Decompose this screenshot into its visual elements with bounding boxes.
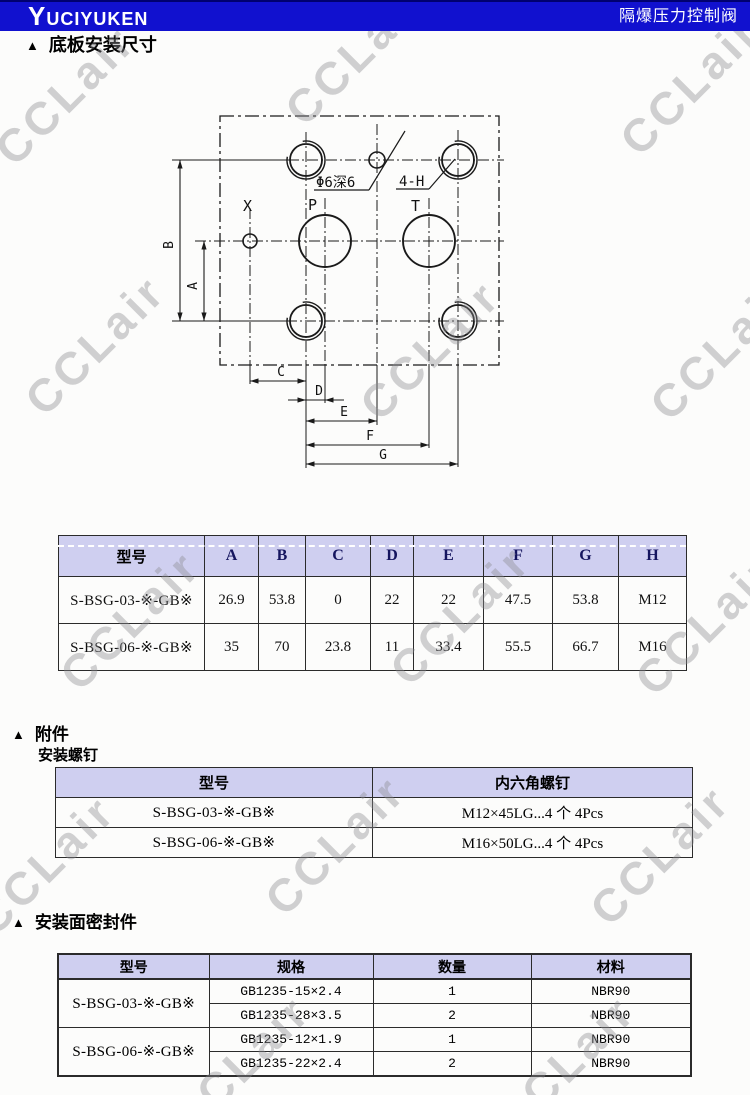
col-header-e: E [414, 536, 484, 577]
value-cell: M12 [619, 577, 687, 624]
dim-b-label: B [162, 241, 177, 249]
screw-spec-cell: M12×45LG...4 个 4Pcs [373, 798, 693, 828]
subsection-mounting-screws: 安装螺钉 [38, 744, 98, 765]
value-cell: 35 [205, 624, 259, 671]
col-header-b: B [259, 536, 306, 577]
table-row: S-BSG-03-※-GB※ 26.9 53.8 0 22 22 47.5 53… [59, 577, 687, 624]
col-header-material: 材料 [531, 954, 691, 979]
datasheet-page: YUCIYUKEN 隔爆压力控制阀 ▲底板安装尺寸 [0, 0, 750, 1095]
col-header-h: H [619, 536, 687, 577]
table-row: S-BSG-03-※-GB※ M12×45LG...4 个 4Pcs [56, 798, 693, 828]
section-title: 附件 [35, 725, 69, 744]
model-cell: S-BSG-06-※-GB※ [59, 624, 205, 671]
material-cell: NBR90 [531, 1004, 691, 1028]
material-cell: NBR90 [531, 1052, 691, 1077]
section-heading-mounting-dimensions: ▲底板安装尺寸 [26, 31, 157, 57]
value-cell: 11 [371, 624, 414, 671]
table-row: S-BSG-06-※-GB※ 35 70 23.8 11 33.4 55.5 6… [59, 624, 687, 671]
value-cell: 33.4 [414, 624, 484, 671]
qty-cell: 1 [373, 979, 531, 1004]
value-cell: 26.9 [205, 577, 259, 624]
value-cell: 70 [259, 624, 306, 671]
col-header-d: D [371, 536, 414, 577]
table-row: S-BSG-06-※-GB※ M16×50LG...4 个 4Pcs [56, 828, 693, 858]
qty-cell: 2 [373, 1004, 531, 1028]
col-header-model: 型号 [58, 954, 209, 979]
mounting-dimension-drawing: Φ6深6 4-H X P T B A C D E [150, 98, 525, 483]
triangle-marker-icon: ▲ [12, 915, 25, 930]
dim-c-label: C [277, 365, 285, 380]
page-title: 隔爆压力控制阀 [619, 2, 738, 32]
model-cell: S-BSG-03-※-GB※ [56, 798, 373, 828]
table-header-row: 型号 内六角螺钉 [56, 768, 693, 798]
value-cell: 47.5 [484, 577, 553, 624]
triangle-marker-icon: ▲ [12, 727, 25, 742]
value-cell: 66.7 [553, 624, 619, 671]
value-cell: 55.5 [484, 624, 553, 671]
material-cell: NBR90 [531, 979, 691, 1004]
value-cell: 22 [371, 577, 414, 624]
col-header-spec: 规格 [209, 954, 373, 979]
value-cell: 22 [414, 577, 484, 624]
model-cell: S-BSG-06-※-GB※ [56, 828, 373, 858]
col-header-c: C [306, 536, 371, 577]
model-cell: S-BSG-03-※-GB※ [58, 979, 209, 1028]
col-header-g: G [553, 536, 619, 577]
spec-cell: GB1235-12×1.9 [209, 1028, 373, 1052]
qty-cell: 1 [373, 1028, 531, 1052]
mounting-screw-table: 型号 内六角螺钉 S-BSG-03-※-GB※ M12×45LG...4 个 4… [55, 767, 693, 858]
col-header-model: 型号 [56, 768, 373, 798]
material-cell: NBR90 [531, 1028, 691, 1052]
value-cell: 53.8 [259, 577, 306, 624]
value-cell: 0 [306, 577, 371, 624]
dim-f-label: F [366, 429, 374, 444]
triangle-marker-icon: ▲ [26, 38, 39, 53]
spec-cell: GB1235-28×3.5 [209, 1004, 373, 1028]
value-cell: M16 [619, 624, 687, 671]
seal-table: 型号 规格 数量 材料 S-BSG-03-※-GB※ GB1235-15×2.4… [57, 953, 692, 1077]
col-header-model: 型号 [59, 536, 205, 577]
table-header-row: 型号 规格 数量 材料 [58, 954, 691, 979]
spec-cell: GB1235-22×2.4 [209, 1052, 373, 1077]
col-header-qty: 数量 [373, 954, 531, 979]
section-title: 安装面密封件 [35, 913, 137, 932]
dim-e-label: E [340, 405, 348, 420]
port-p-label: P [308, 196, 317, 214]
header-bar: YUCIYUKEN 隔爆压力控制阀 [0, 0, 750, 31]
value-cell: 53.8 [553, 577, 619, 624]
port-x-label: X [243, 197, 252, 215]
table-header-row: 型号 A B C D E F G H [59, 536, 687, 577]
dim-d-label: D [315, 384, 323, 399]
brand-logo: YUCIYUKEN [28, 2, 148, 34]
value-cell: 23.8 [306, 624, 371, 671]
screw-spec-cell: M16×50LG...4 个 4Pcs [373, 828, 693, 858]
col-header-f: F [484, 536, 553, 577]
section-heading-surface-seals: ▲安装面密封件 [12, 908, 137, 933]
dim-g-label: G [379, 448, 387, 463]
pilot-hole-note: Φ6深6 [316, 175, 355, 191]
bolt-hole-note: 4-H [399, 174, 424, 190]
model-cell: S-BSG-03-※-GB※ [59, 577, 205, 624]
section-heading-accessories: ▲附件 [12, 720, 69, 745]
port-t-label: T [411, 197, 420, 215]
model-cell: S-BSG-06-※-GB※ [58, 1028, 209, 1077]
table-row: S-BSG-06-※-GB※ GB1235-12×1.9 1 NBR90 [58, 1028, 691, 1052]
spec-cell: GB1235-15×2.4 [209, 979, 373, 1004]
col-header-a: A [205, 536, 259, 577]
dim-a-label: A [186, 282, 201, 290]
watermark: CCLair [639, 269, 750, 431]
table-row: S-BSG-03-※-GB※ GB1235-15×2.4 1 NBR90 [58, 979, 691, 1004]
section-title: 底板安装尺寸 [49, 35, 157, 55]
qty-cell: 2 [373, 1052, 531, 1077]
dimension-table: 型号 A B C D E F G H S-BSG-03-※-GB※ 26.9 5… [58, 535, 687, 671]
col-header-screw: 内六角螺钉 [373, 768, 693, 798]
